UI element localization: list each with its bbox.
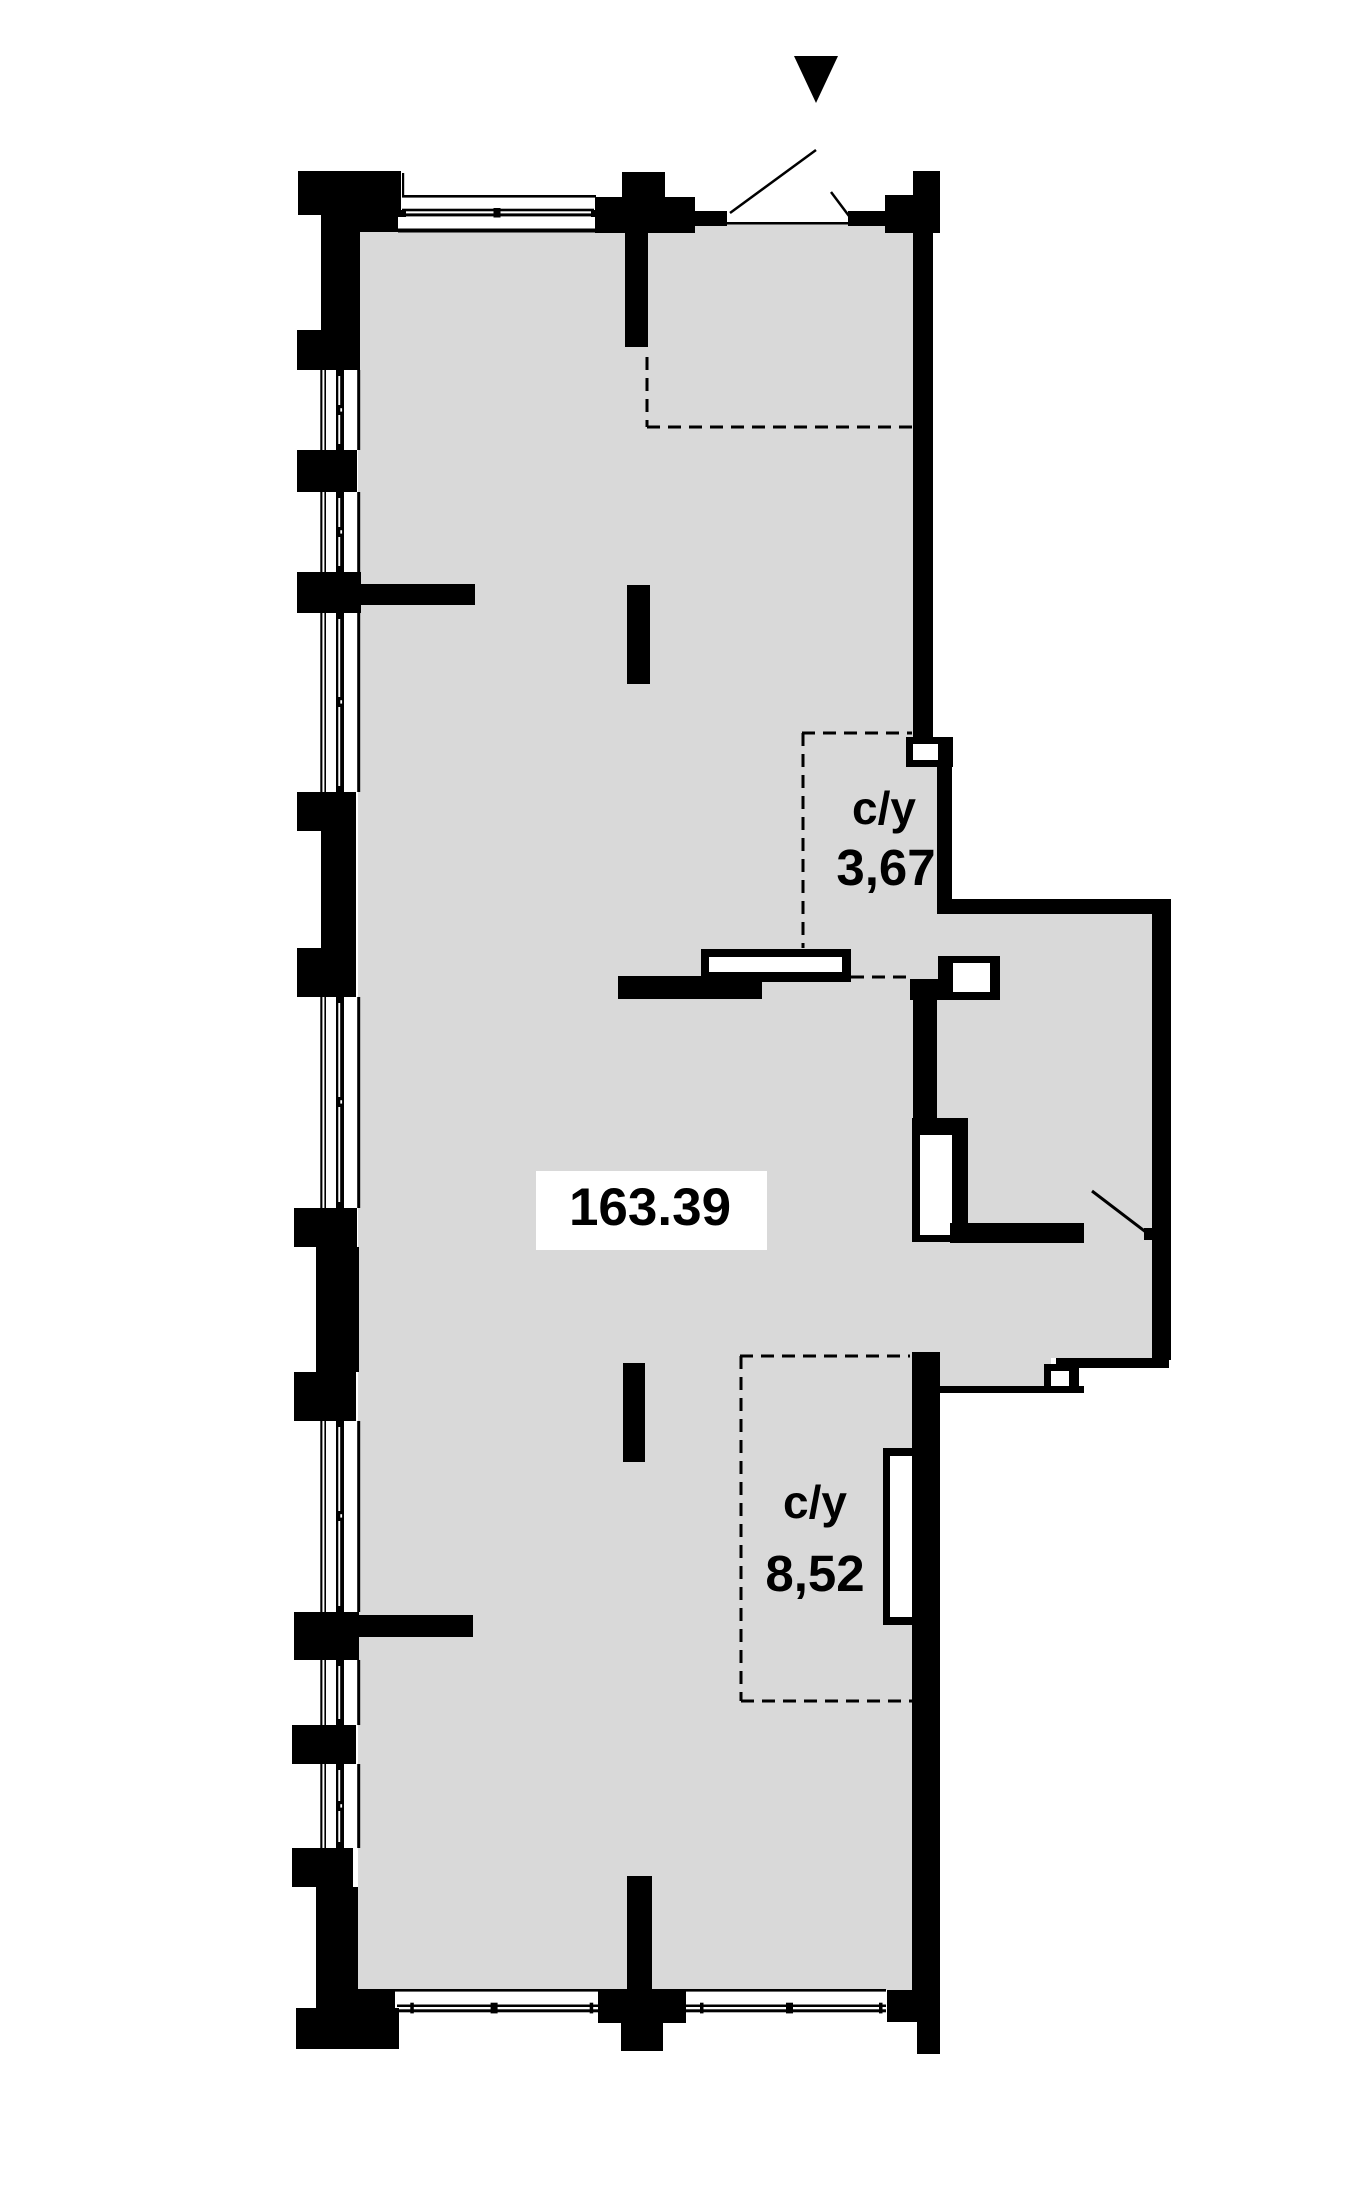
- svg-text:8,52: 8,52: [765, 1545, 864, 1602]
- svg-text:с/у: с/у: [852, 782, 916, 834]
- svg-text:163.39: 163.39: [569, 1178, 731, 1237]
- svg-text:с/у: с/у: [783, 1476, 847, 1528]
- svg-text:3,67: 3,67: [836, 839, 935, 896]
